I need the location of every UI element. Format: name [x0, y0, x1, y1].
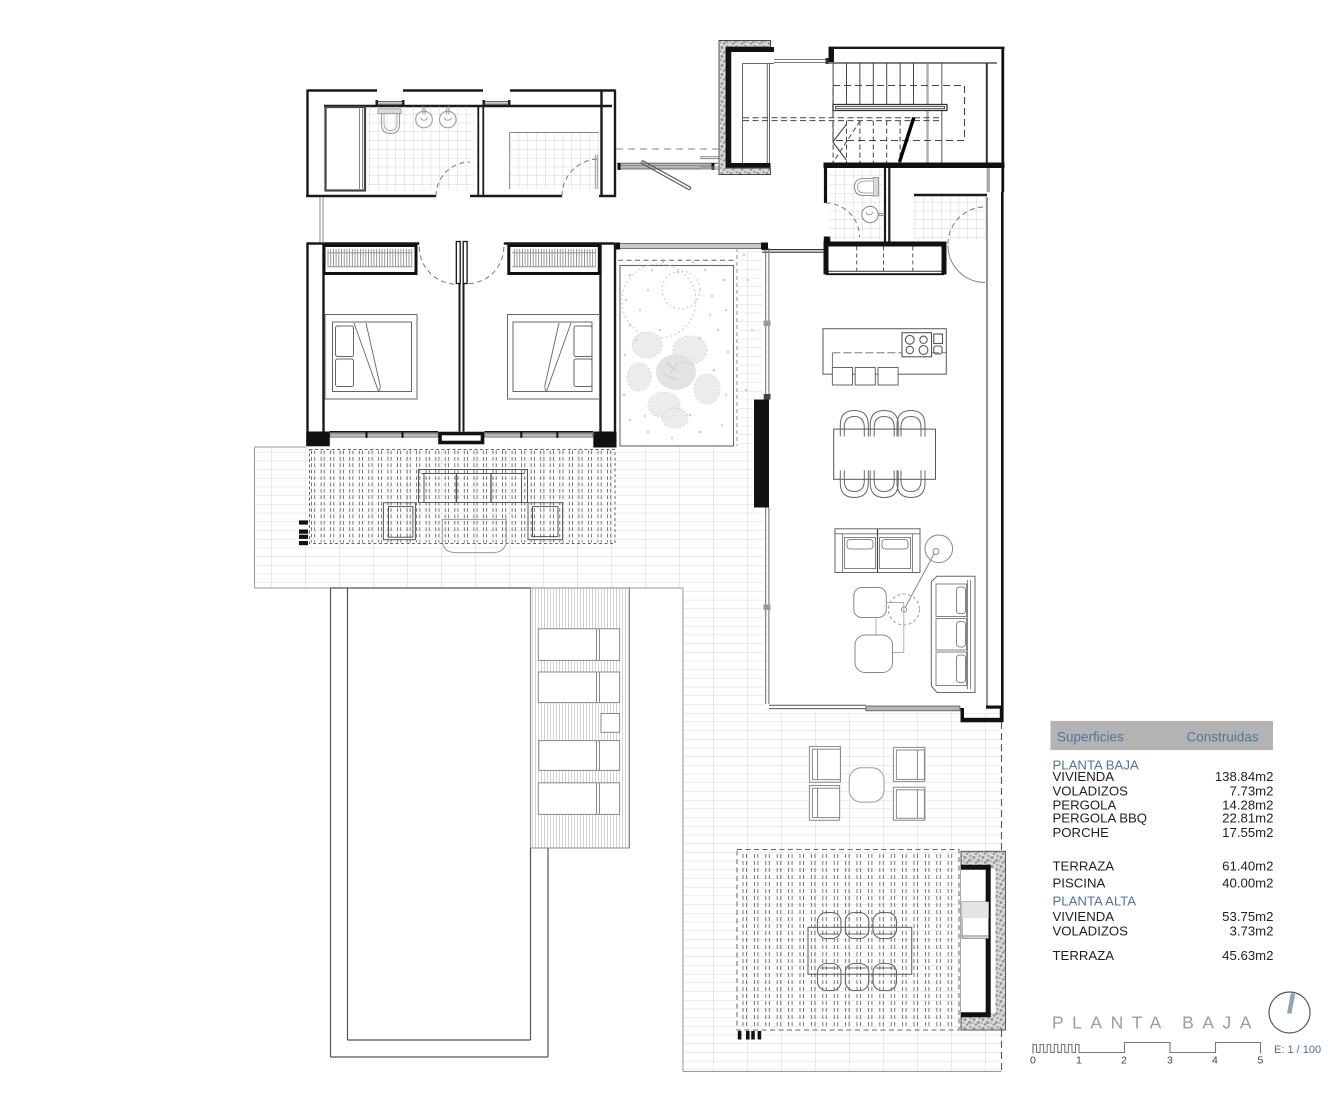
- svg-text:PLANTA BAJA: PLANTA BAJA: [1052, 1013, 1260, 1033]
- svg-text:3.73m2: 3.73m2: [1230, 923, 1274, 938]
- svg-text:PLANTA ALTA: PLANTA ALTA: [1053, 894, 1137, 909]
- svg-text:PORCHE: PORCHE: [1053, 825, 1110, 840]
- svg-text:4: 4: [1212, 1055, 1218, 1067]
- svg-text:7.73m2: 7.73m2: [1230, 784, 1274, 799]
- svg-text:1: 1: [1076, 1055, 1082, 1067]
- svg-text:Superficies: Superficies: [1057, 730, 1124, 745]
- svg-text:40.00m2: 40.00m2: [1222, 875, 1273, 890]
- svg-text:2: 2: [1121, 1055, 1127, 1067]
- svg-text:VOLADIZOS: VOLADIZOS: [1053, 923, 1129, 938]
- svg-text:17.55m2: 17.55m2: [1222, 825, 1273, 840]
- svg-text:PISCINA: PISCINA: [1053, 875, 1106, 890]
- svg-text:TERRAZA: TERRAZA: [1053, 948, 1115, 963]
- svg-text:VIVIENDA: VIVIENDA: [1053, 909, 1115, 924]
- svg-text:22.81m2: 22.81m2: [1222, 811, 1273, 826]
- svg-text:PERGOLA BBQ: PERGOLA BBQ: [1053, 811, 1148, 826]
- svg-text:Construidas: Construidas: [1187, 730, 1259, 745]
- svg-text:61.40m2: 61.40m2: [1222, 859, 1273, 874]
- svg-text:138.84m2: 138.84m2: [1215, 769, 1274, 784]
- svg-text:53.75m2: 53.75m2: [1222, 909, 1273, 924]
- svg-text:VOLADIZOS: VOLADIZOS: [1053, 784, 1129, 799]
- svg-text:0: 0: [1030, 1055, 1036, 1067]
- svg-text:45.63m2: 45.63m2: [1222, 948, 1273, 963]
- svg-text:5: 5: [1258, 1055, 1264, 1067]
- svg-text:3: 3: [1167, 1055, 1173, 1067]
- svg-text:TERRAZA: TERRAZA: [1053, 859, 1115, 874]
- svg-text:VIVIENDA: VIVIENDA: [1053, 769, 1115, 784]
- svg-text:E: 1 / 100: E: 1 / 100: [1274, 1044, 1321, 1056]
